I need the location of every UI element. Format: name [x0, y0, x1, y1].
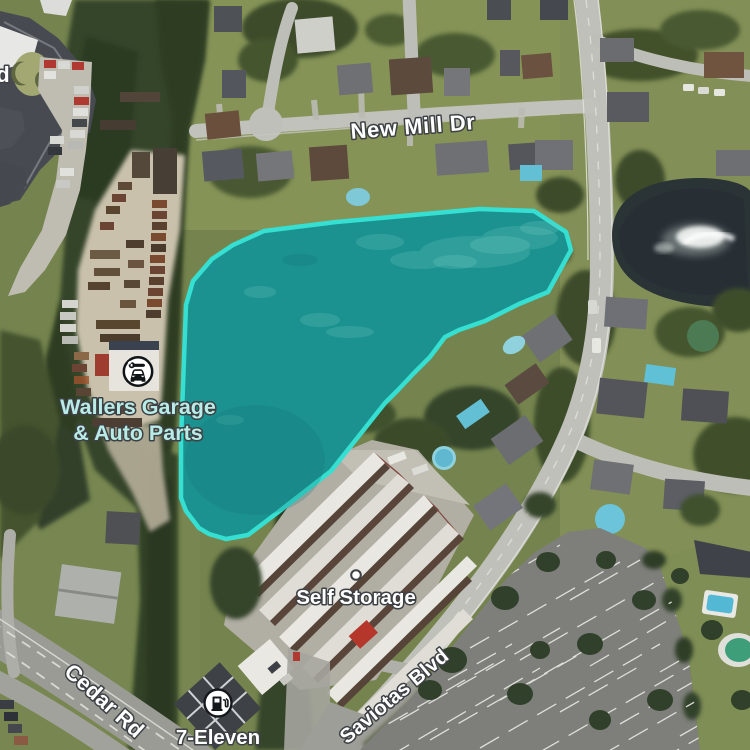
svg-text:d: d [0, 62, 10, 87]
svg-text:Self Storage: Self Storage [296, 586, 416, 609]
svg-text:Wallers Garage: Wallers Garage [60, 395, 216, 419]
svg-text:& Auto Parts: & Auto Parts [73, 421, 202, 445]
svg-text:7-Eleven: 7-Eleven [176, 726, 260, 749]
